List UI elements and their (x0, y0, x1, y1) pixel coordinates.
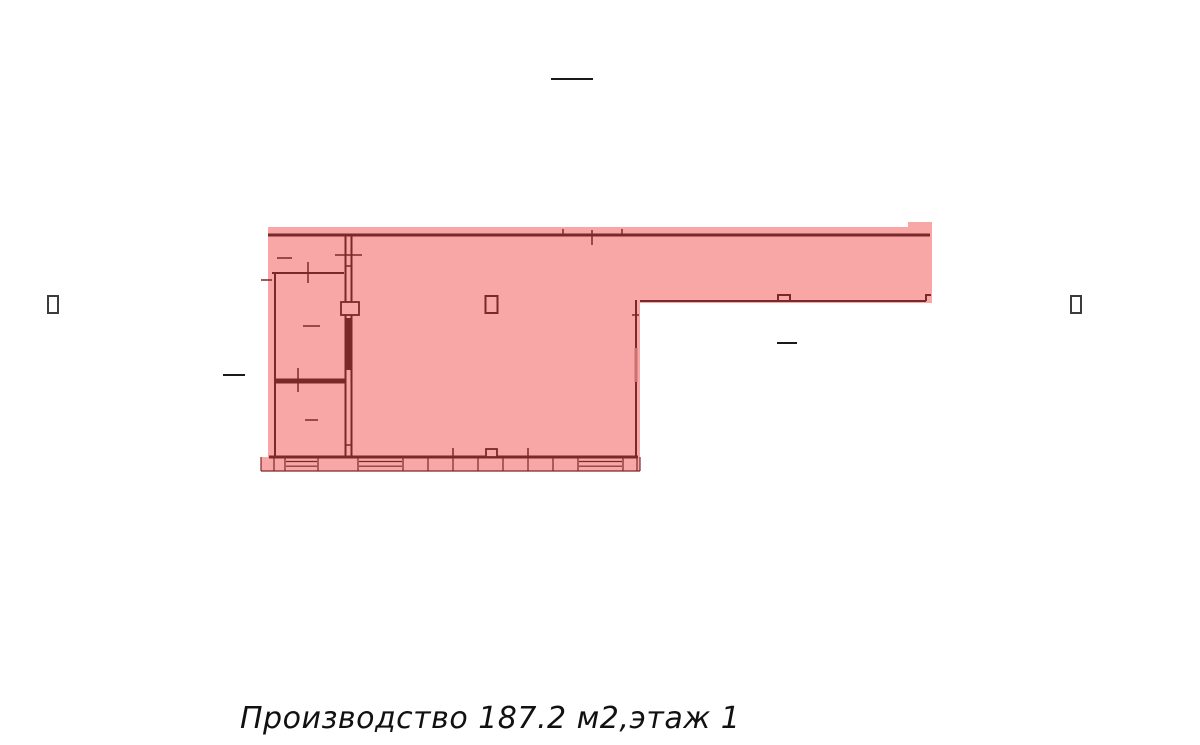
floor-plan-page: Производство 187.2 м2,этаж 1 (0, 0, 1200, 745)
central-wall-shaft (346, 318, 352, 370)
missing-glyph-box-left (48, 296, 58, 313)
missing-glyph-box-right (1071, 296, 1081, 313)
bottom-wall-box (486, 449, 497, 457)
highlight-bleed-step (908, 222, 932, 228)
central-wall-box (341, 302, 359, 315)
floor-plan-svg (0, 0, 1200, 745)
highlighted-area-shape[interactable] (261, 227, 932, 471)
highlighted-area[interactable] (261, 222, 932, 471)
plan-caption: Производство 187.2 м2,этаж 1 (240, 701, 740, 736)
